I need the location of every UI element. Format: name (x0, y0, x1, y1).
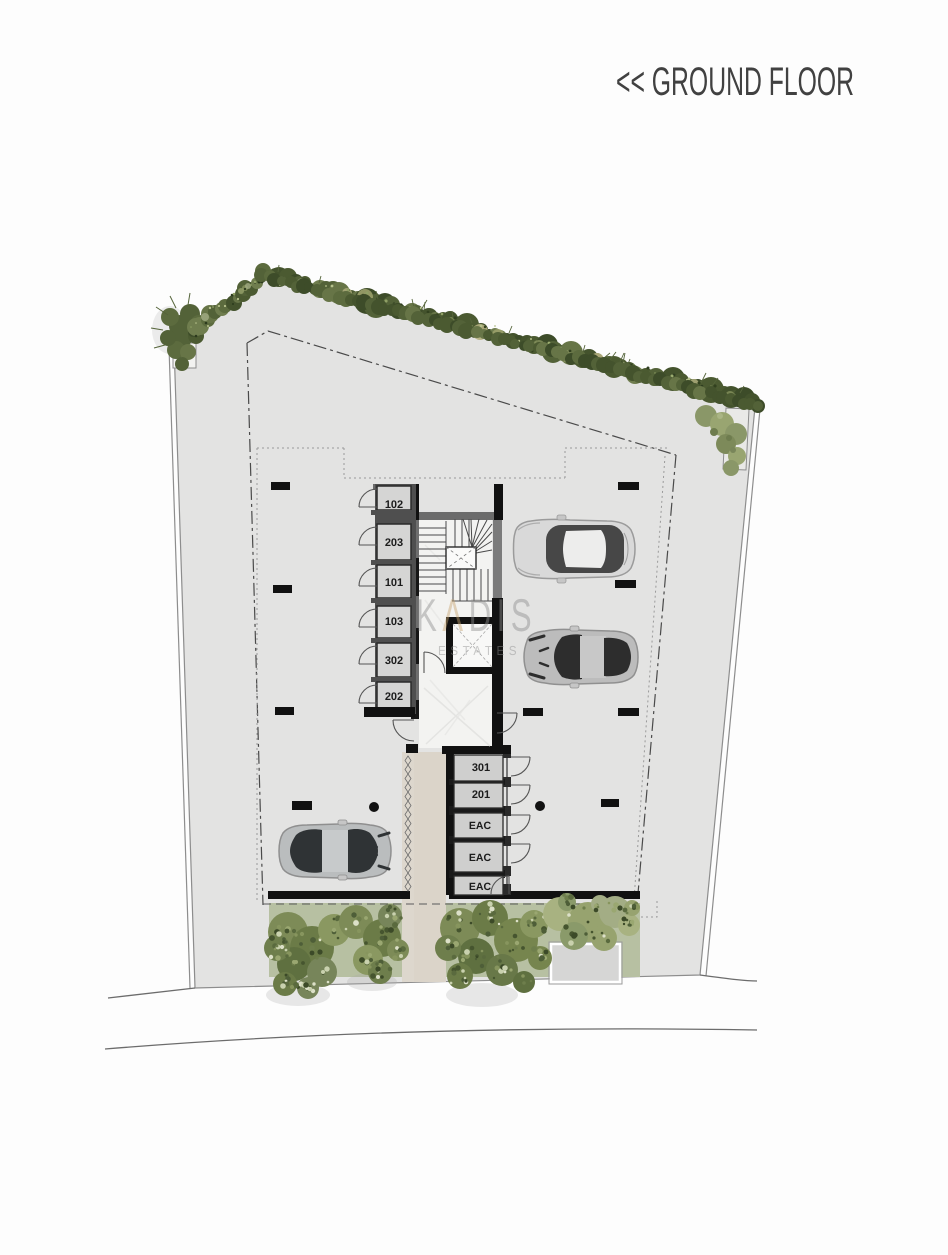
svg-text:KΛDIS: KΛDIS (416, 589, 537, 641)
svg-text:<< GROUND FLOOR: << GROUND FLOOR (616, 60, 854, 104)
svg-text:EAC: EAC (469, 852, 492, 864)
svg-text:301: 301 (472, 762, 490, 774)
svg-text:201: 201 (472, 789, 490, 801)
svg-text:ESTATES: ESTATES (438, 643, 521, 658)
svg-text:101: 101 (385, 577, 403, 589)
svg-text:203: 203 (385, 537, 403, 549)
svg-text:EAC: EAC (469, 881, 492, 893)
svg-text:302: 302 (385, 655, 403, 667)
svg-text:EAC: EAC (469, 820, 492, 832)
svg-text:102: 102 (385, 499, 403, 511)
svg-text:202: 202 (385, 691, 403, 703)
svg-text:103: 103 (385, 616, 403, 628)
